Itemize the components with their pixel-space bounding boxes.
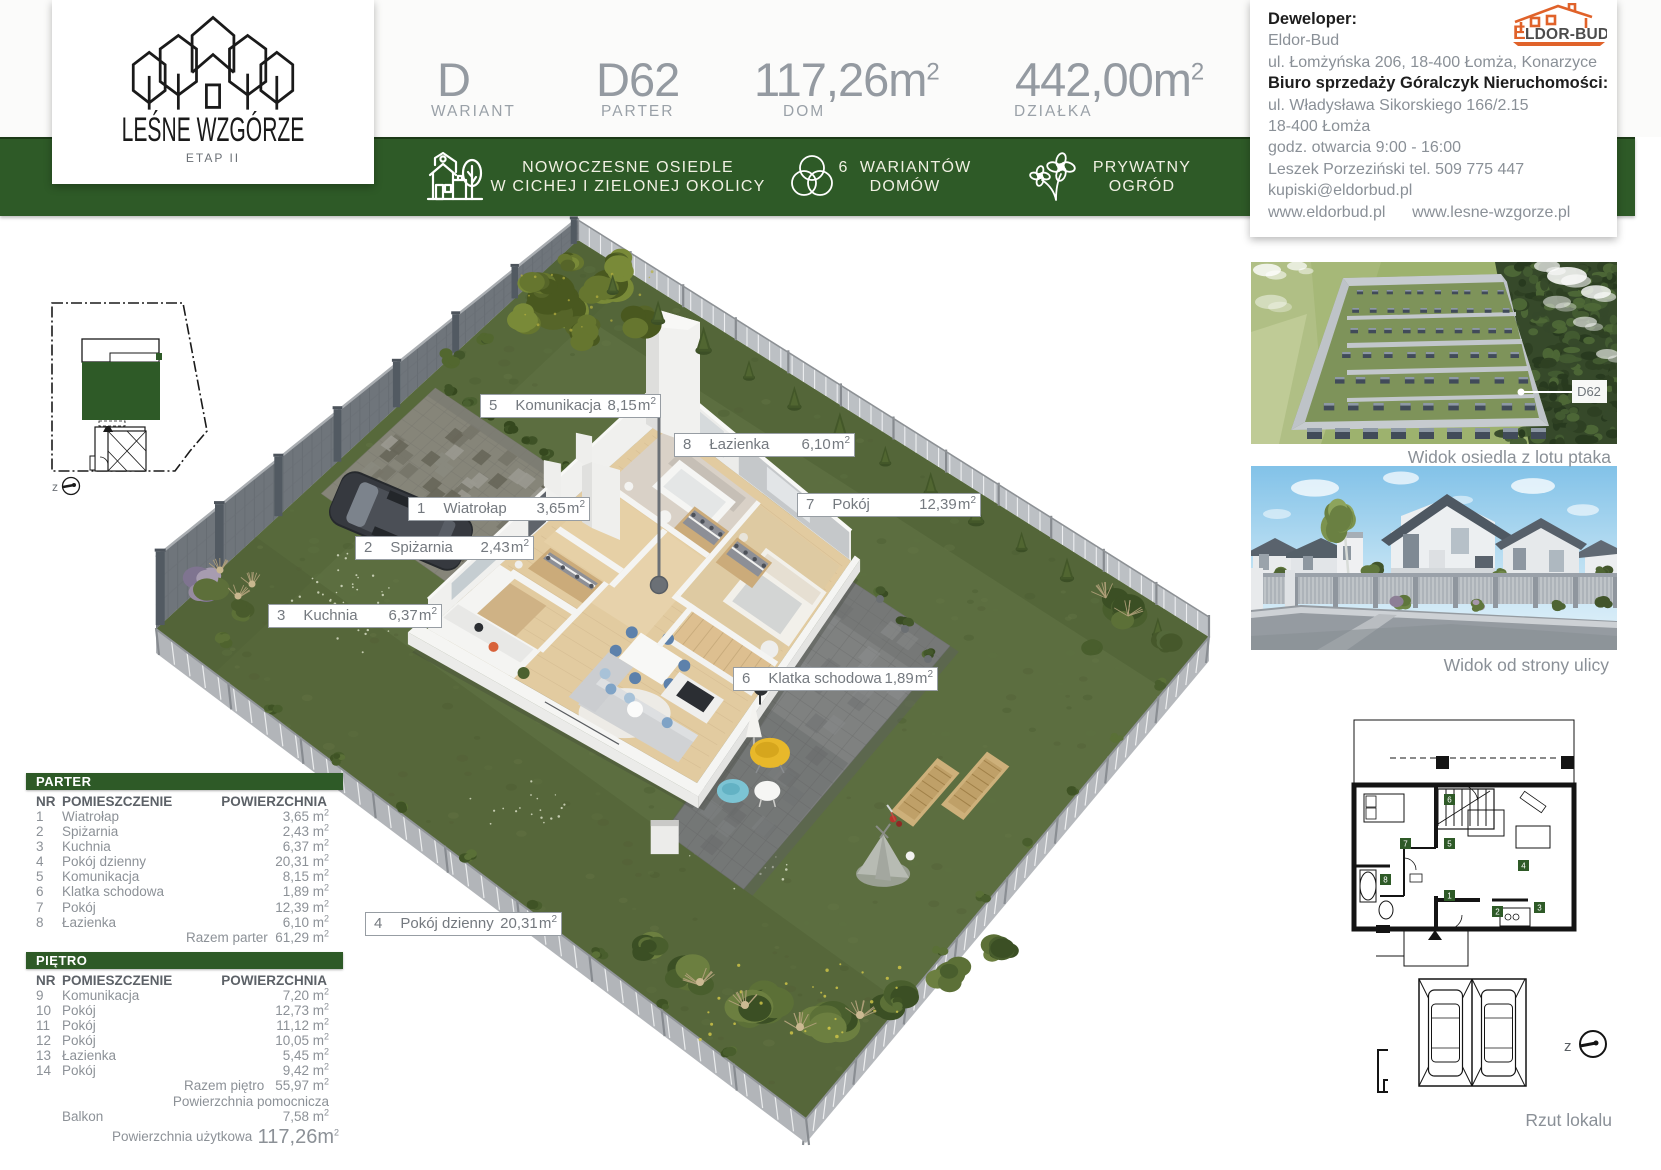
svg-text:3: 3 [1537, 904, 1542, 913]
svg-text:D62: D62 [1577, 384, 1601, 399]
svg-text:z: z [1564, 1038, 1572, 1055]
svg-text:4: 4 [1521, 862, 1526, 871]
svg-text:8: 8 [1383, 876, 1388, 885]
svg-text:6: 6 [1447, 796, 1452, 805]
svg-text:7: 7 [1403, 840, 1408, 849]
svg-text:2: 2 [1495, 908, 1500, 917]
svg-text:5: 5 [1447, 840, 1452, 849]
svg-text:z: z [52, 480, 58, 494]
svg-text:1: 1 [1447, 892, 1452, 901]
